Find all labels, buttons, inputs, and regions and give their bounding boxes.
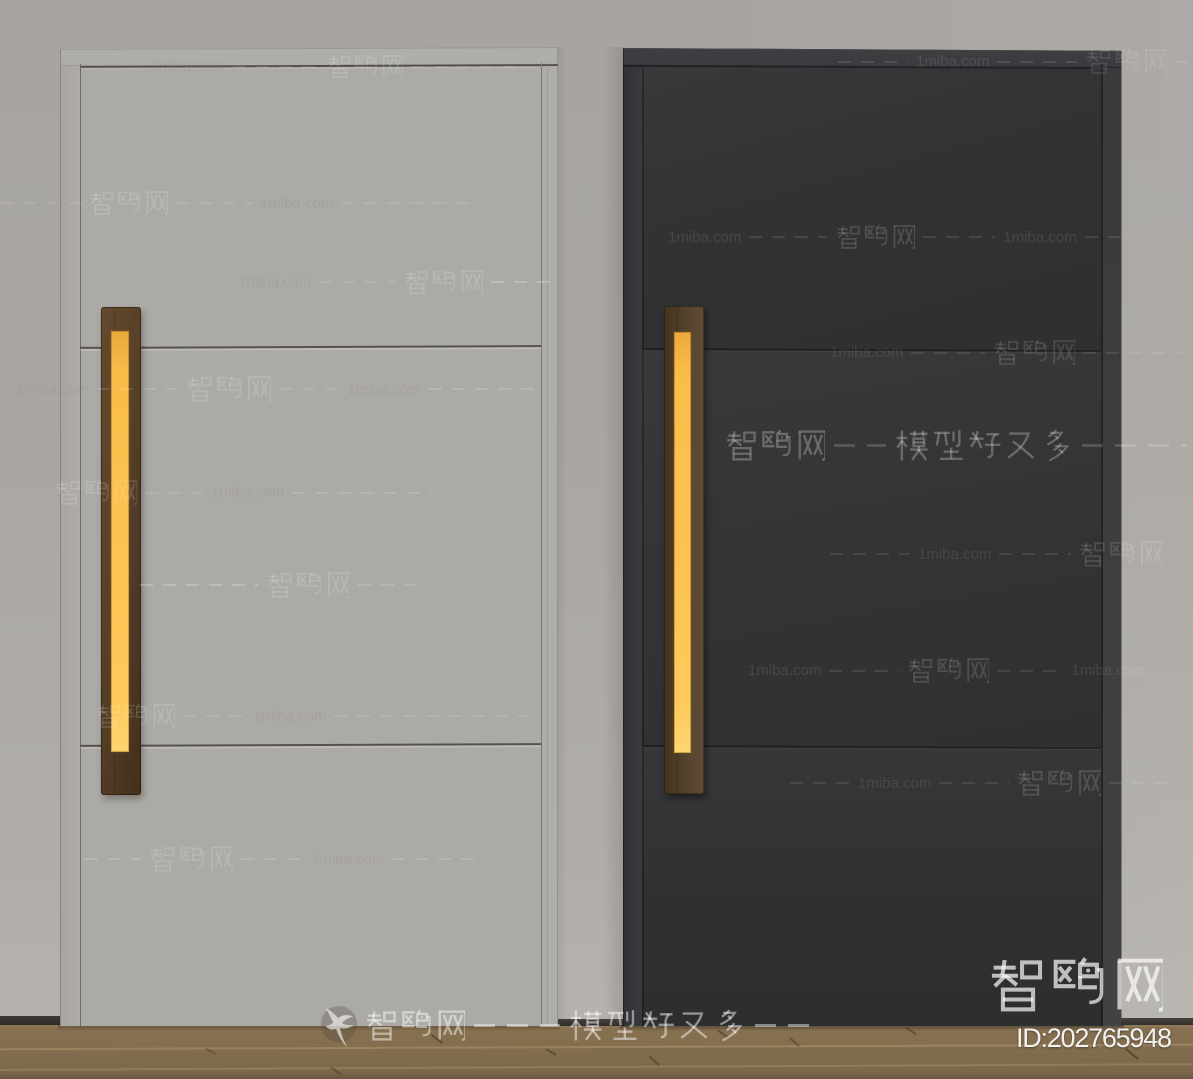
svg-text:ID:202765948: ID:202765948	[1016, 1023, 1172, 1053]
